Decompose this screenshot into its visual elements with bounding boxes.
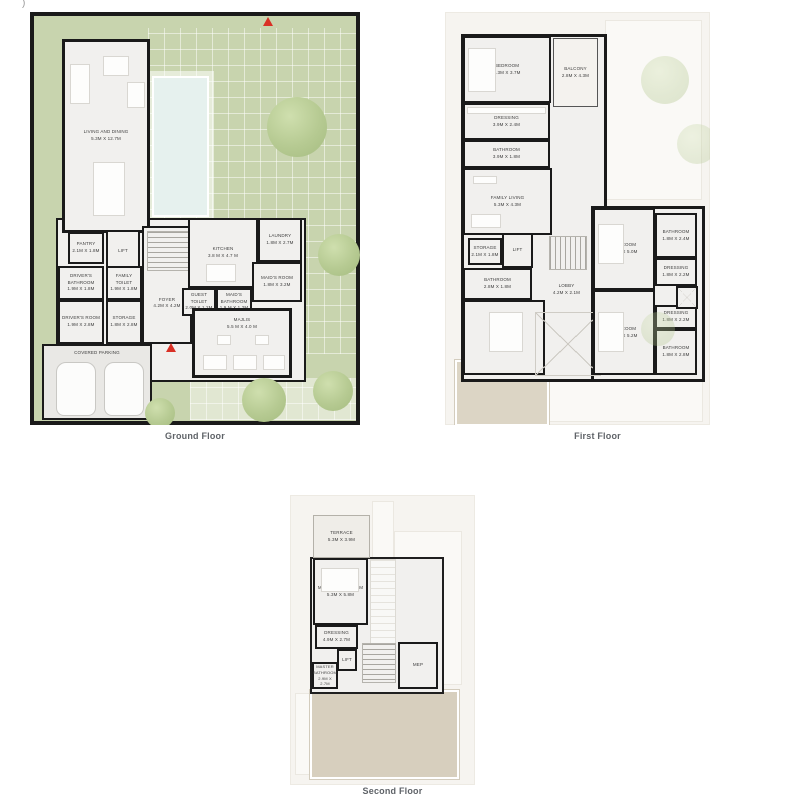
side-table xyxy=(217,335,231,345)
room-bedroom: BEDROOM 3.7M X 5.0M xyxy=(593,208,655,290)
room-label: LIFT xyxy=(342,657,352,664)
room-label: MAJLIS xyxy=(234,317,251,324)
room-label: PANTRY xyxy=(77,241,96,248)
bed xyxy=(468,48,496,92)
room-dim: 3.9M X 1.8M xyxy=(493,154,520,161)
room-storage: STORAGE 1.8M X 2.8M xyxy=(106,300,142,344)
room-dim: 5.3M X 12.7M xyxy=(91,136,121,143)
ground-floor-caption: Ground Floor xyxy=(30,431,360,441)
room-label: DRESSING xyxy=(664,265,689,272)
room-dim: 1.9M X 2.8M xyxy=(67,322,94,329)
room-dim: 1.9M X 1.8M xyxy=(110,286,137,293)
room-label: MASTER BATHROOM xyxy=(313,664,337,676)
dining-table xyxy=(93,162,125,216)
room-label: STORAGE xyxy=(474,245,497,252)
room-foyer: FOYER 4.2M X 4.2M xyxy=(142,226,192,344)
room-terrace: TERRACE 5.3M X 3.9M xyxy=(313,515,370,558)
room-dim: 5.3M X 5.8M xyxy=(327,592,354,599)
room-dim: 2.1M X 1.8M xyxy=(72,248,99,255)
tree-faded xyxy=(641,312,675,346)
room-label: FOYER xyxy=(159,297,175,304)
room-bedroom: BEDROOM 3.9M X 4.9M xyxy=(463,300,545,375)
room-dim: 5.3M X 3.7M xyxy=(493,70,520,77)
room-dim: 1.9M X 1.8M xyxy=(67,286,94,293)
room-dressing: DRESSING 4.9M X 2.7M xyxy=(315,625,358,649)
room-label: MAID'S BATHROOM xyxy=(219,292,249,305)
car xyxy=(104,362,144,416)
second-floor-plan: TERRACE 5.3M X 3.9M MASTER BEDROOM 5.3M … xyxy=(290,495,475,785)
room-label: COVERED PARKING xyxy=(74,350,120,357)
bed xyxy=(489,312,523,352)
wardrobe xyxy=(467,107,546,114)
room-pantry: PANTRY 2.1M X 1.8M xyxy=(68,232,104,264)
room-dim: 2.9M X 2.7M xyxy=(315,676,335,688)
room-laundry: LAUNDRY 1.8M X 2.7M xyxy=(258,218,302,262)
sofa xyxy=(203,355,227,370)
room-dim: 4.2M X 4.2M xyxy=(153,303,180,310)
tree-faded xyxy=(641,56,689,104)
room-living-dining: LIVING AND DINING 5.3M X 12.7M xyxy=(62,39,150,233)
room-dim: 4.9M X 2.7M xyxy=(323,637,350,644)
void-cross xyxy=(535,312,601,376)
room-dim: 1.8M X 2.7M xyxy=(266,240,293,247)
sofa xyxy=(233,355,257,370)
room-label: BEDROOM xyxy=(495,63,519,70)
room-dim: 1.8M X 3.2M xyxy=(263,282,290,289)
staircase xyxy=(147,231,189,271)
bed xyxy=(321,568,359,592)
room-maids-room: MAID'S ROOM 1.8M X 3.2M xyxy=(252,262,302,302)
room-label: MEP xyxy=(413,662,423,669)
room-bathroom: BATHROOM 3.9M X 1.8M xyxy=(463,140,550,168)
room-label: LIFT xyxy=(118,248,128,255)
room-lift: LIFT xyxy=(337,649,357,671)
sofa xyxy=(103,56,129,76)
staircase xyxy=(549,236,587,270)
entry-arrow-icon xyxy=(166,343,176,352)
sofa xyxy=(70,64,90,104)
tree-faded xyxy=(677,124,710,164)
room-mep: MEP xyxy=(398,642,438,689)
roof-ghost xyxy=(605,20,702,200)
sofa xyxy=(471,214,501,228)
tree xyxy=(318,234,360,276)
tree xyxy=(267,97,327,157)
room-label: LOBBY xyxy=(559,283,575,290)
room-dim: 5.5 M X 4.0 M xyxy=(227,324,257,331)
room-bathroom: BATHROOM 1.8M X 2.4M xyxy=(655,213,697,258)
room-label: FAMILY TOILET xyxy=(109,273,139,286)
side-table xyxy=(255,335,269,345)
ground-floor-plan: LIVING AND DINING 5.3M X 12.7M PANTRY 2.… xyxy=(30,12,360,425)
kitchen-island xyxy=(206,264,236,282)
room-covered-parking: COVERED PARKING xyxy=(42,344,152,420)
room-label: BATHROOM xyxy=(663,229,690,236)
room-dim: 1.8M X 2.2M xyxy=(662,272,689,279)
room-majlis: MAJLIS 5.5 M X 4.0 M xyxy=(192,308,292,378)
room-dim: 1.8M X 2.8M xyxy=(110,322,137,329)
tree xyxy=(313,371,353,411)
room-label: KITCHEN xyxy=(213,246,234,253)
glazed-corridor xyxy=(370,559,396,645)
room-label: BATHROOM xyxy=(493,147,520,154)
room-dressing: DRESSING 3.9M X 2.4M xyxy=(463,103,550,140)
room-bathroom: BATHROOM 2.8M X 1.8M xyxy=(463,268,532,300)
room-drivers-room: DRIVER'S ROOM 1.9M X 2.8M xyxy=(58,300,104,344)
room-dim: 3.8 M X 4.7 M xyxy=(208,253,238,260)
roof-ghost xyxy=(295,693,311,775)
tree xyxy=(242,378,286,422)
room-drivers-bathroom: DRIVER'S BATHROOM 1.9M X 1.8M xyxy=(58,266,104,300)
room-dim: 1.8M X 2.4M xyxy=(662,236,689,243)
car xyxy=(56,362,96,416)
room-dim: 2.8M X 4.3M xyxy=(562,73,589,80)
room-dim: 1.8M X 2.8M xyxy=(662,352,689,359)
room-label: GUEST TOILET xyxy=(185,292,213,305)
second-floor-caption: Second Floor xyxy=(300,786,485,796)
bed xyxy=(598,312,624,352)
room-label: DRESSING xyxy=(324,630,349,637)
room-family-toilet: FAMILY TOILET 1.9M X 1.8M xyxy=(106,266,142,300)
room-storage: STORAGE 2.1M X 1.8M xyxy=(468,238,502,265)
room-kitchen: KITCHEN 3.8 M X 4.7 M xyxy=(188,218,258,288)
room-label: DRESSING xyxy=(494,115,519,122)
room-label: LAUNDRY xyxy=(269,233,291,240)
page-artifact-mark: ) xyxy=(22,0,25,9)
roof-ghost xyxy=(545,378,703,422)
room-label: MAID'S ROOM xyxy=(261,275,293,282)
room-dim: 2.8M X 1.8M xyxy=(484,284,511,291)
room-dressing: DRESSING 1.8M X 2.2M xyxy=(655,258,697,286)
room-dim: 4.2M X 2.1M xyxy=(553,290,580,297)
swimming-pool xyxy=(152,76,209,217)
room-label: STORAGE xyxy=(113,315,136,322)
room-label: LIVING AND DINING xyxy=(84,129,129,136)
bed xyxy=(598,224,624,264)
room-bedroom: BEDROOM 5.3M X 3.7M xyxy=(463,36,551,103)
room-label: FAMILY LIVING xyxy=(491,195,525,202)
room-master-bedroom: MASTER BEDROOM 5.3M X 5.8M xyxy=(313,558,368,625)
room-label: BATHROOM xyxy=(484,277,511,284)
first-floor-plan: BEDROOM 5.3M X 3.7M BALCONY 2.8M X 4.3M … xyxy=(445,12,710,425)
room-label: DRIVER'S BATHROOM xyxy=(61,273,101,286)
entry-arrow-icon xyxy=(263,17,273,26)
room-balcony: BALCONY 2.8M X 4.3M xyxy=(553,38,598,107)
room-label: TERRACE xyxy=(330,530,353,537)
armchair xyxy=(127,82,145,108)
room-lift: LIFT xyxy=(502,233,533,268)
room-dim: 3.9M X 2.4M xyxy=(493,122,520,129)
room-label: DRIVER'S ROOM xyxy=(62,315,100,322)
room-dim: 2.1M X 1.8M xyxy=(471,252,498,259)
terrace-deck xyxy=(310,690,459,779)
room-family-living: FAMILY LIVING 5.3M X 4.3M xyxy=(463,168,552,235)
sofa xyxy=(263,355,285,370)
room-master-bathroom: MASTER BATHROOM 2.9M X 2.7M xyxy=(312,662,338,689)
tv-console xyxy=(473,176,497,184)
tree xyxy=(145,398,175,425)
staircase xyxy=(362,643,396,683)
shaft xyxy=(676,286,698,309)
room-dim: 5.3M X 4.3M xyxy=(494,202,521,209)
room-label: BATHROOM xyxy=(663,345,690,352)
room-label: LIFT xyxy=(513,247,523,254)
first-floor-caption: First Floor xyxy=(465,431,730,441)
room-dim: 5.3M X 3.9M xyxy=(328,537,355,544)
room-label: BALCONY xyxy=(564,66,587,73)
